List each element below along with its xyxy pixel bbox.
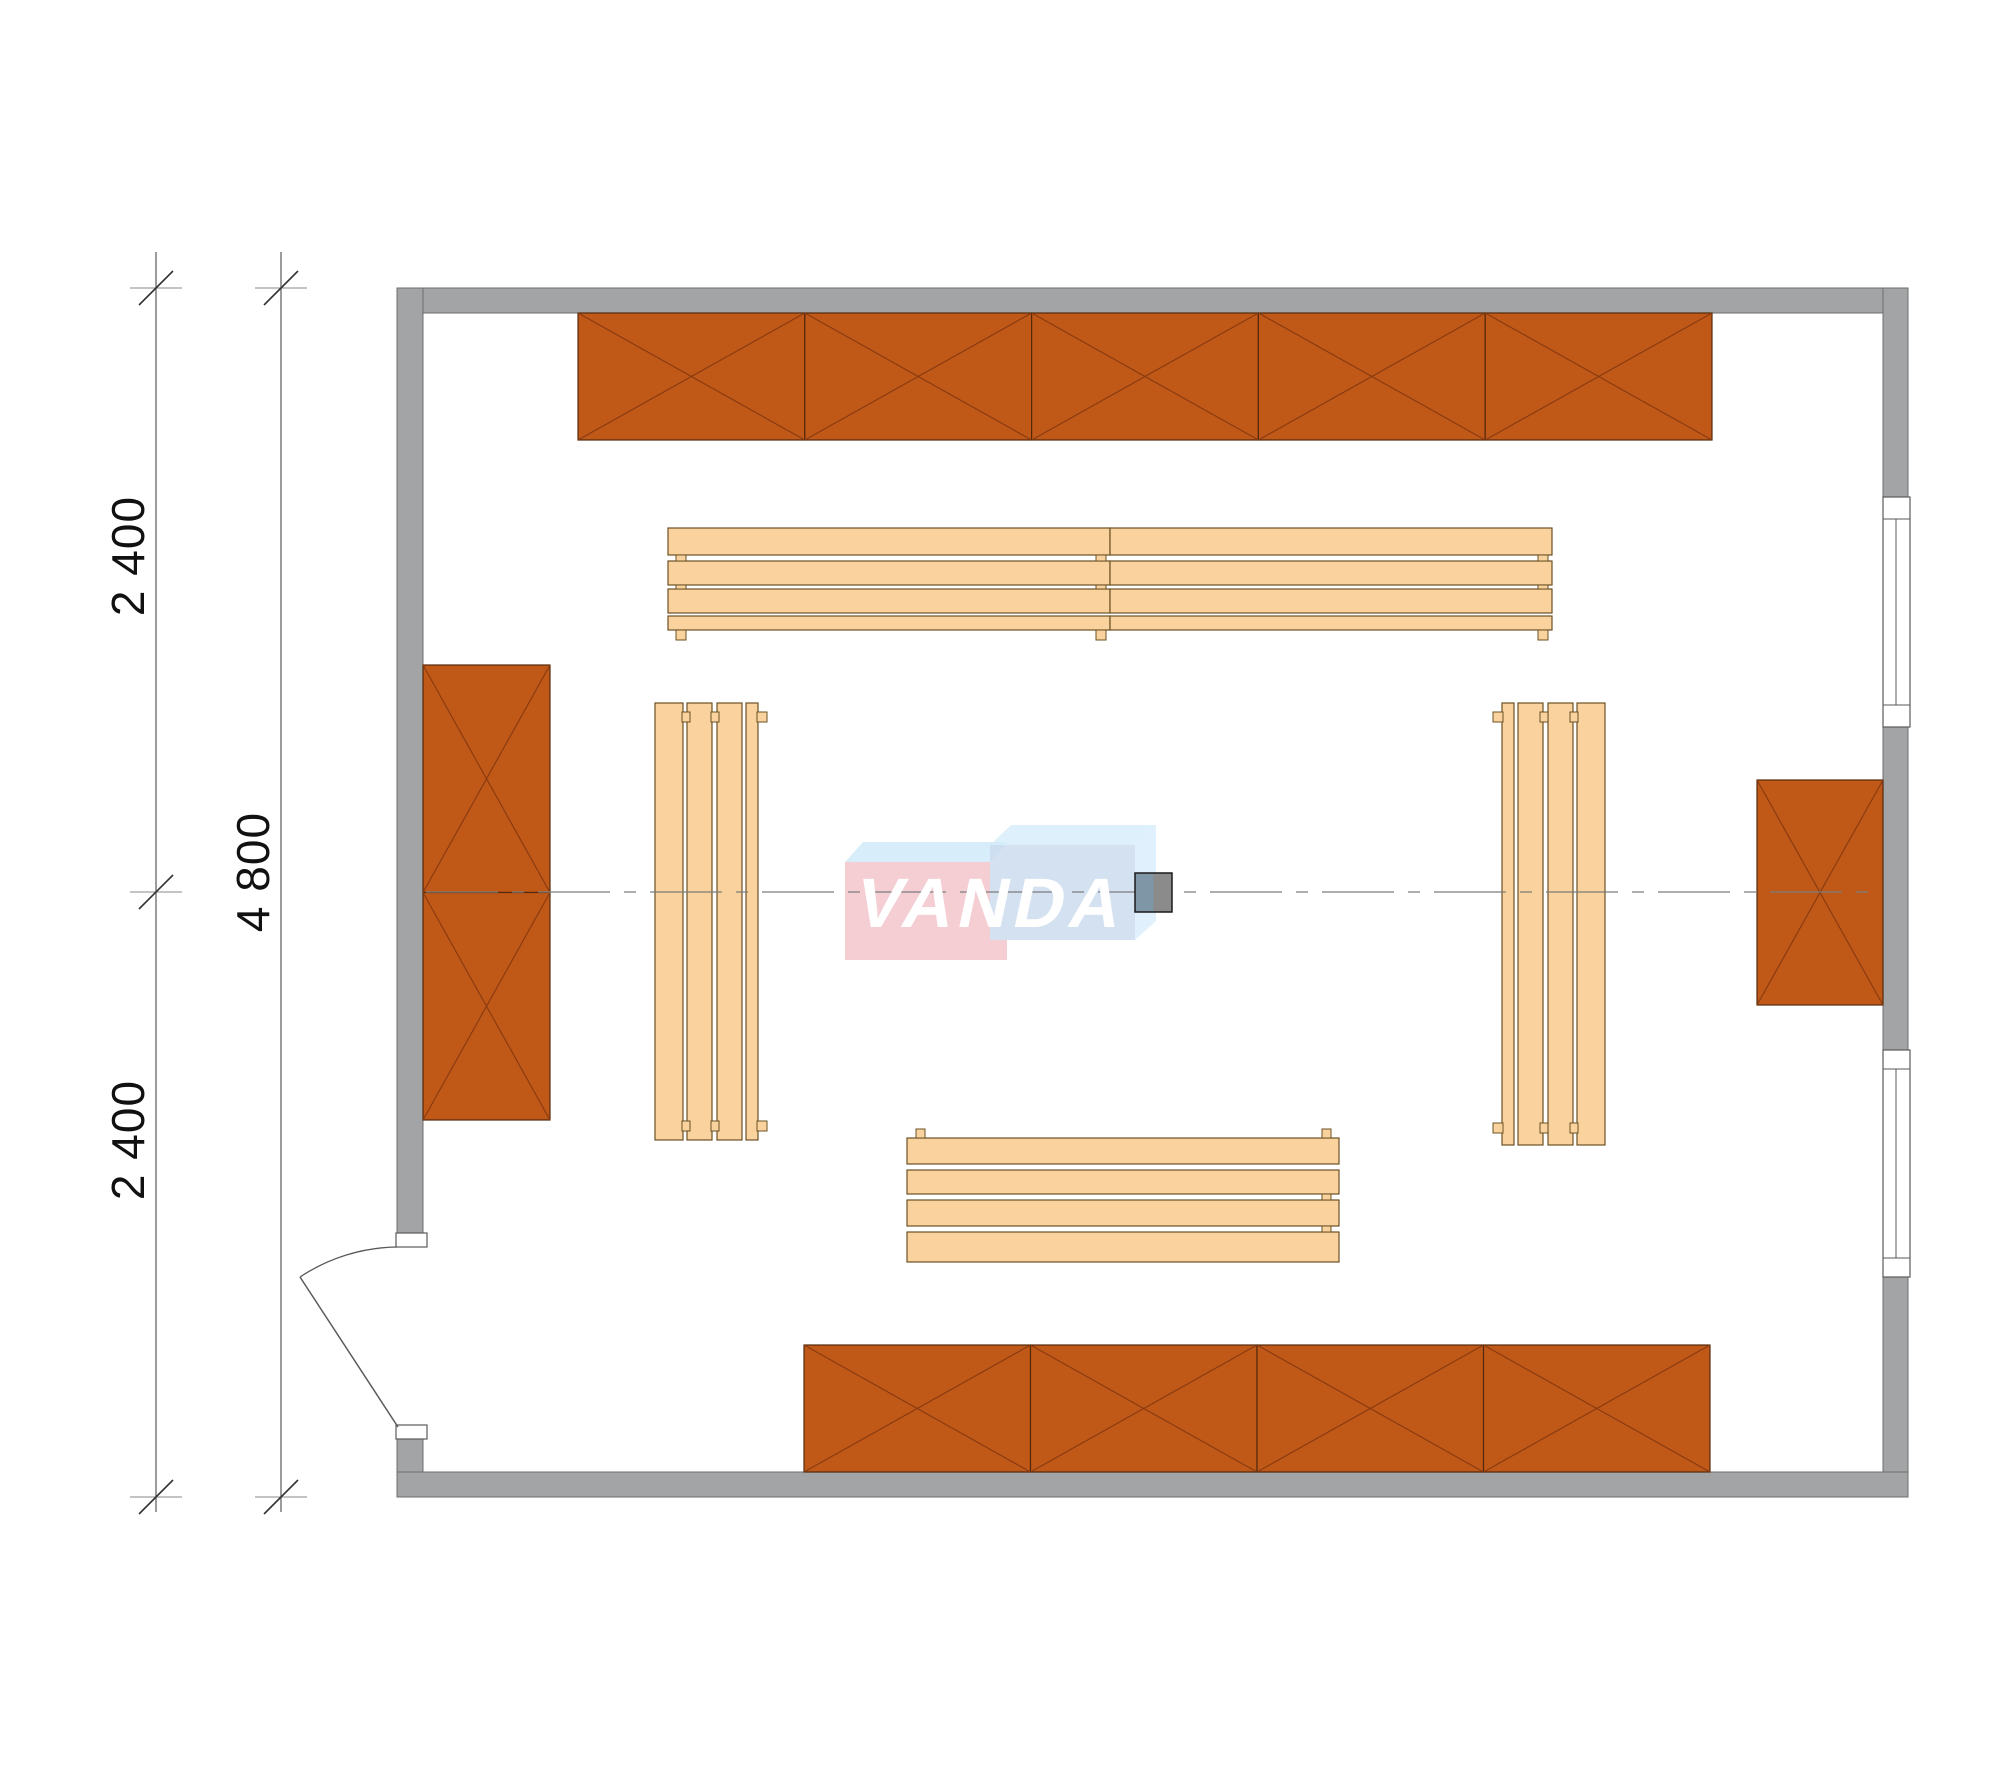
bench-left-foot [711,712,719,722]
bench-top-left-foot [1096,630,1106,640]
valve-symbol-right-half [1154,873,1173,912]
bench-top-right-plank [1110,561,1552,585]
logo-red-block-notch [990,940,1007,960]
bench-left-foot [711,1121,719,1131]
bench-right-plank [1518,703,1543,1145]
logo-watermark-text: VANDA [849,863,1135,943]
bench-top-left-foot [1096,555,1106,561]
dimension-label-overall-4800: 4 800 [226,812,280,932]
bench-top-right-plank [1110,528,1552,555]
bench-left-foot [682,1121,690,1131]
floor-plan-canvas: 2 400 4 800 2 400 VANDA [0,0,2000,1786]
bench-left-plank [717,703,742,1140]
bench-top-right-plank [1110,616,1552,630]
wall-right-middle [1883,727,1908,1050]
bench-right-foot [1540,712,1548,722]
bench-top-left-plank [668,616,1110,630]
bench-top-right-plank [1110,589,1552,613]
bench-left-plank [746,703,758,1140]
bench-right-foot [1570,712,1578,722]
bench-right-foot [1570,1123,1578,1133]
door-leaf [300,1277,398,1427]
bench-bottom-foot [1322,1129,1331,1138]
bench-right-foot [1493,1123,1503,1133]
bench-right-plank [1548,703,1573,1145]
logo-blue-top-face [990,825,1156,845]
bench-left-foot [682,712,690,722]
bench-right-plank [1577,703,1605,1145]
bench-left-foot [757,712,767,722]
bench-bottom-foot [916,1129,925,1138]
bench-left-plank [655,703,683,1140]
door-jamb-top [396,1233,427,1247]
bench-top-right-foot [1538,630,1548,640]
bench-top-right-foot [1538,585,1548,589]
bench-top-left-foot [676,555,686,561]
bench-right-foot [1540,1123,1548,1133]
logo-pink-top-face [845,842,1008,862]
bench-top-left-plank [668,561,1110,585]
bench-bottom-plank [907,1200,1339,1226]
wall-right-lower [1883,1277,1908,1472]
wall-left-upper [397,288,423,1233]
bench-bottom-plank [907,1232,1339,1262]
bench-bottom-foot [1322,1226,1331,1232]
valve-symbol-left-half [1135,873,1154,912]
dimension-label-lower-2400: 2 400 [101,1080,155,1200]
bench-bottom-plank [907,1138,1339,1164]
bench-left-foot [757,1121,767,1131]
bench-bottom-foot [1322,1194,1331,1200]
wall-right-upper [1883,288,1908,497]
wall-bottom [397,1472,1908,1497]
bench-bottom-plank [907,1170,1339,1194]
door-swing-arc [300,1247,397,1277]
dimension-label-upper-2400: 2 400 [101,496,155,616]
door-jamb-bottom [396,1425,427,1439]
bench-top-left-foot [676,630,686,640]
wall-top [397,288,1908,313]
bench-top-left-plank [668,589,1110,613]
bench-top-right-foot [1538,555,1548,561]
bench-right-plank [1502,703,1514,1145]
bench-top-left-plank [668,528,1110,555]
bench-left-plank [687,703,712,1140]
bench-top-left-foot [1096,585,1106,589]
bench-top-left-foot [676,585,686,589]
bench-right-foot [1493,712,1503,722]
